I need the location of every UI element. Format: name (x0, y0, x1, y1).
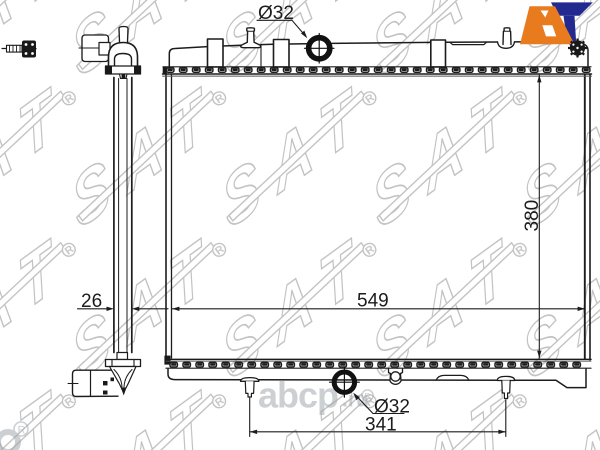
svg-text:26: 26 (81, 291, 102, 312)
svg-text:380: 380 (522, 200, 543, 232)
svg-text:341: 341 (365, 415, 397, 436)
svg-text:Ø32: Ø32 (258, 3, 294, 24)
svg-text:abcp: abcp (258, 375, 338, 416)
svg-text:R: R (364, 391, 370, 401)
svg-text:R: R (18, 425, 26, 437)
svg-text:Ø32: Ø32 (374, 396, 410, 417)
svg-text:549: 549 (357, 291, 389, 312)
